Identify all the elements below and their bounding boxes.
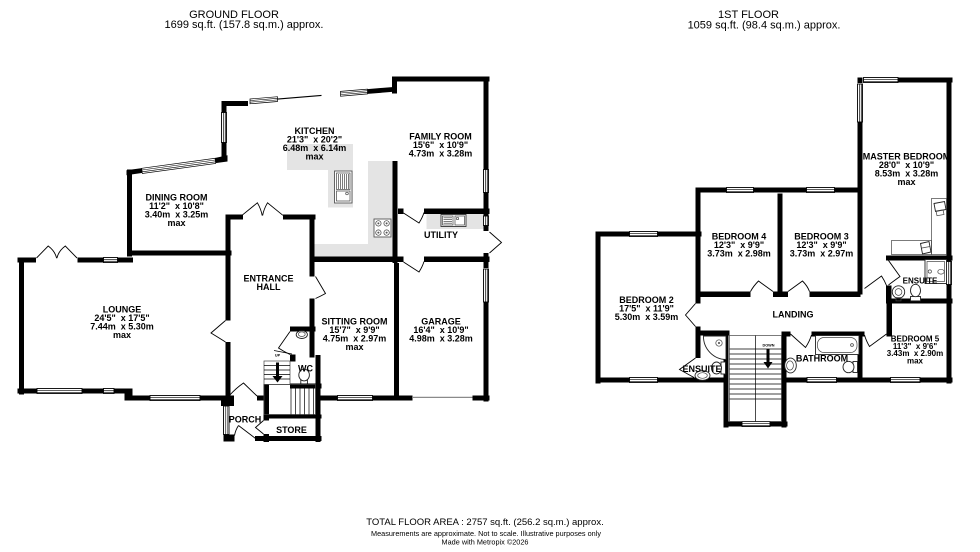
svg-text:3.73m x 2.97m: 3.73m x 2.97m xyxy=(790,249,854,259)
svg-text:max: max xyxy=(345,342,363,352)
svg-text:1699 sq.ft. (157.8 sq.m.) appr: 1699 sq.ft. (157.8 sq.m.) approx. xyxy=(165,19,324,31)
svg-text:ENSUITE: ENSUITE xyxy=(682,364,721,374)
svg-text:DOWN: DOWN xyxy=(762,344,774,348)
svg-text:TOTAL FLOOR AREA : 2757 sq.ft.: TOTAL FLOOR AREA : 2757 sq.ft. (256.2 sq… xyxy=(366,517,603,528)
svg-text:max: max xyxy=(113,330,131,340)
svg-text:max: max xyxy=(907,356,924,365)
svg-text:max: max xyxy=(167,218,185,228)
svg-text:WC: WC xyxy=(298,364,313,374)
svg-text:3.73m x 2.98m: 3.73m x 2.98m xyxy=(707,249,771,259)
svg-text:4.73m x 3.28m: 4.73m x 3.28m xyxy=(409,149,473,159)
svg-text:Made with Metropix ©2026: Made with Metropix ©2026 xyxy=(442,538,529,547)
svg-text:1059 sq.ft. (98.4 sq.m.) appro: 1059 sq.ft. (98.4 sq.m.) approx. xyxy=(688,19,841,31)
svg-text:HALL: HALL xyxy=(257,282,281,292)
svg-text:UTILITY: UTILITY xyxy=(424,230,458,240)
svg-text:BATHROOM: BATHROOM xyxy=(796,354,848,364)
svg-text:4.98m x 3.28m: 4.98m x 3.28m xyxy=(409,334,473,344)
svg-text:LANDING: LANDING xyxy=(773,310,814,320)
svg-text:ENSUITE: ENSUITE xyxy=(903,277,938,286)
svg-text:5.30m x 3.59m: 5.30m x 3.59m xyxy=(615,312,679,322)
svg-text:max: max xyxy=(305,152,323,162)
svg-text:UP: UP xyxy=(275,354,281,358)
svg-text:STORE: STORE xyxy=(276,425,307,435)
svg-text:PORCH: PORCH xyxy=(229,415,262,425)
svg-text:max: max xyxy=(897,177,915,187)
